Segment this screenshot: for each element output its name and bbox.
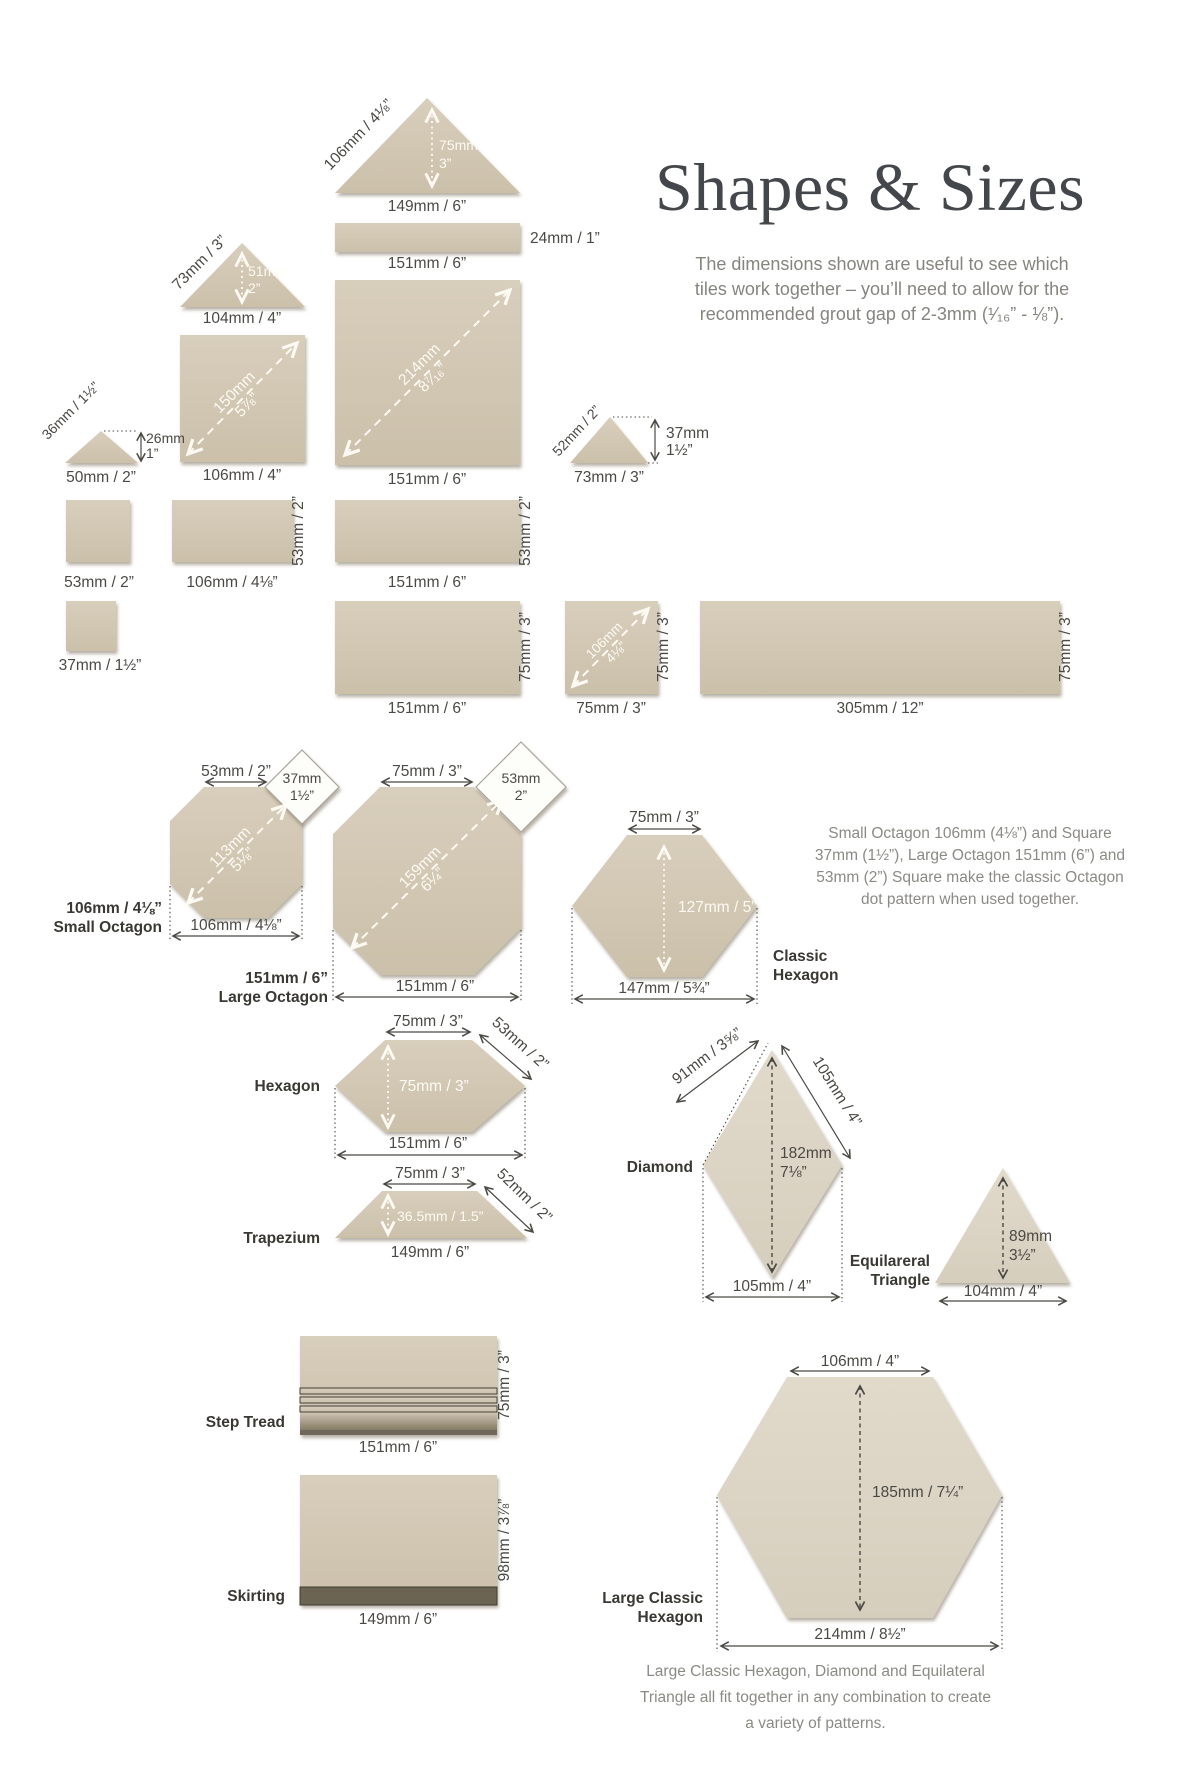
dim-trapezium-base: 149mm / 6” xyxy=(391,1244,469,1261)
label-hexagon: Hexagon xyxy=(255,1078,320,1095)
label-small-octagon-size: 106mm / 4⅛” xyxy=(66,900,162,917)
tile-rect-305x75 xyxy=(700,601,1060,694)
dim-large-hexagon-height: 185mm / 7¼” xyxy=(872,1484,963,1501)
dim-trapezium-top: 75mm / 3” xyxy=(395,1165,465,1182)
label-small-octagon-name: Small Octagon xyxy=(53,919,162,936)
dim-triangle-149-height-in: 3” xyxy=(439,155,452,171)
octagon-note-line-1: Small Octagon 106mm (4⅛”) and Square xyxy=(800,823,1140,845)
page-title: Shapes & Sizes xyxy=(580,148,1160,227)
dim-rect-151x75-base: 151mm / 6” xyxy=(388,700,466,717)
subtitle-line-1: The dimensions shown are useful to see w… xyxy=(670,252,1094,277)
label-large-octagon-size: 151mm / 6” xyxy=(245,970,328,987)
tile-skirting xyxy=(300,1475,497,1605)
dim-triangle-104-base: 104mm / 4” xyxy=(203,310,281,327)
dim-large-octagon-top: 75mm / 3” xyxy=(392,763,462,780)
label-skirting: Skirting xyxy=(227,1588,285,1605)
label-eq-triangle-1: Equilareral xyxy=(850,1253,930,1270)
dim-diamond-height-in: 7⅛” xyxy=(780,1164,807,1181)
dim-triangle-104-height-mm: 51mm xyxy=(248,263,287,279)
footer-note-line-1: Large Classic Hexagon, Diamond and Equil… xyxy=(593,1659,1038,1685)
dim-triangle-73-base: 73mm / 3” xyxy=(574,469,644,486)
dim-strip-width: 151mm / 6” xyxy=(388,255,466,272)
footer-note-line-2: Triangle all fit together in any combina… xyxy=(593,1685,1038,1711)
dim-rect-305x75-base: 305mm / 12” xyxy=(836,700,923,717)
dim-square-151-base: 151mm / 6” xyxy=(388,471,466,488)
dim-square-53: 53mm / 2” xyxy=(64,574,134,591)
tile-square-53 xyxy=(66,500,130,562)
label-step-tread: Step Tread xyxy=(206,1414,285,1431)
label-classic-hexagon-1: Classic xyxy=(773,948,828,965)
label-eq-triangle-2: Triangle xyxy=(871,1272,931,1289)
label-trapezium: Trapezium xyxy=(243,1230,320,1247)
step-tread-groove-1 xyxy=(300,1388,497,1394)
tile-rect-106x53 xyxy=(172,500,293,562)
dim-rect-151x53-side: 53mm / 2” xyxy=(517,496,534,566)
dim-square-106-base: 106mm / 4” xyxy=(203,467,281,484)
dim-triangle-50-height-mm: 26mm xyxy=(146,430,185,446)
dim-square-75-base: 75mm / 3” xyxy=(576,700,646,717)
footer-note-line-3: a variety of patterns. xyxy=(593,1711,1038,1737)
dim-triangle-50-height-in: 1” xyxy=(146,445,159,461)
dim-classic-hexagon-width: 147mm / 5¾” xyxy=(618,980,709,997)
subtitle-line-2: tiles work together – you’ll need to all… xyxy=(670,277,1094,302)
dim-eq-triangle-height-in: 3½” xyxy=(1009,1247,1036,1264)
dim-triangle-73-height-mm: 37mm xyxy=(666,425,709,442)
dim-diamond-height-mm: 182mm xyxy=(780,1145,832,1162)
dim-triangle-104-height-in: 2” xyxy=(248,280,261,296)
dim-large-octagon-width: 151mm / 6” xyxy=(396,978,474,995)
tile-triangle-149 xyxy=(335,98,520,193)
label-large-hexagon-2: Hexagon xyxy=(638,1609,703,1626)
dim-trapezium-height: 36.5mm / 1.5” xyxy=(397,1208,484,1224)
dim-small-octagon-width: 106mm / 4⅛” xyxy=(190,917,281,934)
footer-pattern-note: Large Classic Hexagon, Diamond and Equil… xyxy=(593,1659,1038,1737)
dim-hexagon-height: 75mm / 3” xyxy=(399,1078,469,1095)
octagon-note-line-4: dot pattern when used together. xyxy=(800,889,1140,911)
label-diamond: Diamond xyxy=(627,1159,693,1176)
step-tread-groove-3 xyxy=(300,1406,497,1412)
dim-step-tread-side: 75mm / 3” xyxy=(496,1350,513,1420)
page-subtitle: The dimensions shown are useful to see w… xyxy=(670,252,1094,327)
subtitle-line-3: recommended grout gap of 2-3mm (¹⁄₁₆” - … xyxy=(670,302,1094,327)
dim-skirting-base: 149mm / 6” xyxy=(359,1611,437,1628)
dim-eq-triangle-base: 104mm / 4” xyxy=(964,1283,1042,1300)
label-classic-hexagon-2: Hexagon xyxy=(773,967,838,984)
dim-dot-37-in: 1½” xyxy=(290,787,314,803)
dim-diamond-width: 105mm / 4” xyxy=(733,1278,811,1295)
dim-classic-hexagon-top: 75mm / 3” xyxy=(629,809,699,826)
dim-small-octagon-top: 53mm / 2” xyxy=(201,763,271,780)
tile-triangle-50 xyxy=(65,431,138,463)
dim-strip-height: 24mm / 1” xyxy=(530,230,600,247)
dim-triangle-73-height-in: 1½” xyxy=(666,442,693,459)
step-tread-nose-band xyxy=(300,1414,497,1431)
dim-hexagon-width: 151mm / 6” xyxy=(389,1135,467,1152)
label-large-octagon-name: Large Octagon xyxy=(219,989,328,1006)
dim-classic-hexagon-height: 127mm / 5” xyxy=(678,899,756,916)
octagon-pattern-note: Small Octagon 106mm (4⅛”) and Square 37m… xyxy=(800,823,1140,911)
dim-large-hexagon-width: 214mm / 8½” xyxy=(814,1626,905,1643)
dim-step-tread-base: 151mm / 6” xyxy=(359,1439,437,1456)
dim-triangle-149-height-mm: 75mm xyxy=(439,137,478,153)
dim-rect-151x75-side: 75mm / 3” xyxy=(517,612,534,682)
dim-dot-37-mm: 37mm xyxy=(283,770,322,786)
dim-hexagon-top: 75mm / 3” xyxy=(393,1013,463,1030)
dim-square-37: 37mm / 1½” xyxy=(59,657,142,674)
dim-dot-53-mm: 53mm xyxy=(502,770,541,786)
step-tread-nose-edge xyxy=(300,1430,497,1435)
skirting-trim xyxy=(300,1587,497,1605)
dim-triangle-50-side: 36mm / 1½” xyxy=(38,378,102,442)
dim-dot-53-in: 2” xyxy=(515,787,528,803)
label-large-hexagon-1: Large Classic xyxy=(602,1590,703,1607)
tile-square-37 xyxy=(66,601,116,651)
dim-rect-305x75-side: 75mm / 3” xyxy=(1057,612,1074,682)
dim-rect-151x53-base: 151mm / 6” xyxy=(388,574,466,591)
octagon-note-line-3: 53mm (2”) Square make the classic Octago… xyxy=(800,867,1140,889)
dim-eq-triangle-height-mm: 89mm xyxy=(1009,1228,1052,1245)
dim-square-75-side: 75mm / 3” xyxy=(655,612,672,682)
dim-triangle-50-base: 50mm / 2” xyxy=(66,469,136,486)
dim-rect-106x53-base: 106mm / 4⅛” xyxy=(186,574,277,591)
tile-rect-151x75 xyxy=(335,601,520,694)
octagon-note-line-2: 37mm (1½”), Large Octagon 151mm (6”) and xyxy=(800,845,1140,867)
dim-large-hexagon-top: 106mm / 4” xyxy=(821,1353,899,1370)
step-tread-groove-2 xyxy=(300,1397,497,1403)
dim-diamond-right-side: 105mm / 4” xyxy=(809,1054,865,1129)
dim-rect-106x53-side: 53mm / 2” xyxy=(290,496,307,566)
tile-rect-151x53 xyxy=(335,500,520,562)
dim-triangle-149-base: 149mm / 6” xyxy=(388,198,466,215)
dim-skirting-side: 98mm / 3⅞” xyxy=(496,1499,513,1582)
tile-border-strip xyxy=(335,223,520,252)
